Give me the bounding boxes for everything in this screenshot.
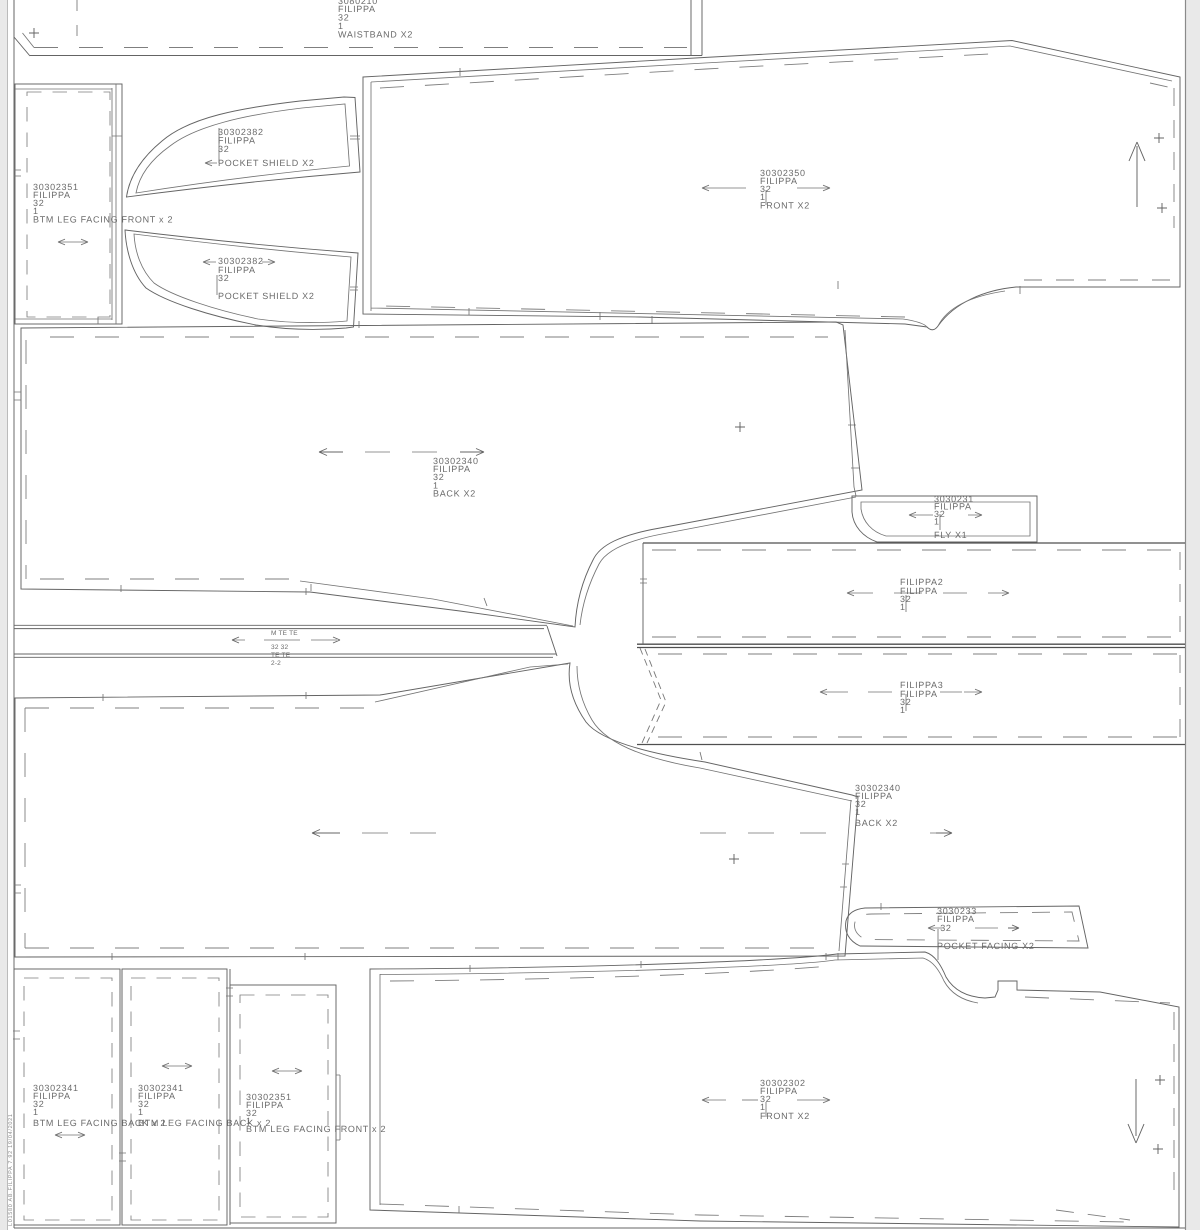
svg-text:32: 32 — [218, 144, 229, 154]
svg-text:32: 32 — [218, 273, 229, 283]
svg-text:1: 1 — [900, 602, 906, 612]
svg-text:2-2: 2-2 — [271, 660, 281, 667]
svg-text:32: 32 — [937, 923, 952, 933]
svg-text:WAISTBAND X2: WAISTBAND X2 — [338, 30, 413, 40]
svg-text:FRONT X2: FRONT X2 — [760, 1111, 810, 1121]
svg-text:POCKET SHIELD X2: POCKET SHIELD X2 — [218, 158, 315, 168]
svg-text:M TE TE: M TE TE — [271, 630, 298, 637]
svg-text:1: 1 — [934, 517, 940, 527]
svg-text:1: 1 — [138, 1107, 144, 1117]
svg-text:BACK X2: BACK X2 — [855, 818, 898, 828]
svg-text:TE TE: TE TE — [271, 652, 291, 659]
svg-text:1: 1 — [900, 705, 906, 715]
svg-text:POCKET FACING X2: POCKET FACING X2 — [937, 941, 1035, 951]
svg-text:1: 1 — [33, 1107, 39, 1117]
svg-text:FLY X1: FLY X1 — [934, 530, 967, 540]
svg-text:BTM LEG FACING FRONT x 2: BTM LEG FACING FRONT x 2 — [246, 1124, 386, 1134]
svg-text:FRONT X2: FRONT X2 — [760, 201, 810, 211]
svg-text:L01580 AB.FILIPPA 7.92 19/04/2: L01580 AB.FILIPPA 7.92 19/04/2021 — [8, 1113, 14, 1226]
svg-text:BACK X2: BACK X2 — [433, 489, 476, 499]
svg-text:BTM LEG FACING FRONT x 2: BTM LEG FACING FRONT x 2 — [33, 215, 173, 225]
svg-text:1: 1 — [855, 807, 861, 817]
svg-text:POCKET SHIELD X2: POCKET SHIELD X2 — [218, 291, 315, 301]
svg-text:32 32: 32 32 — [271, 644, 288, 651]
